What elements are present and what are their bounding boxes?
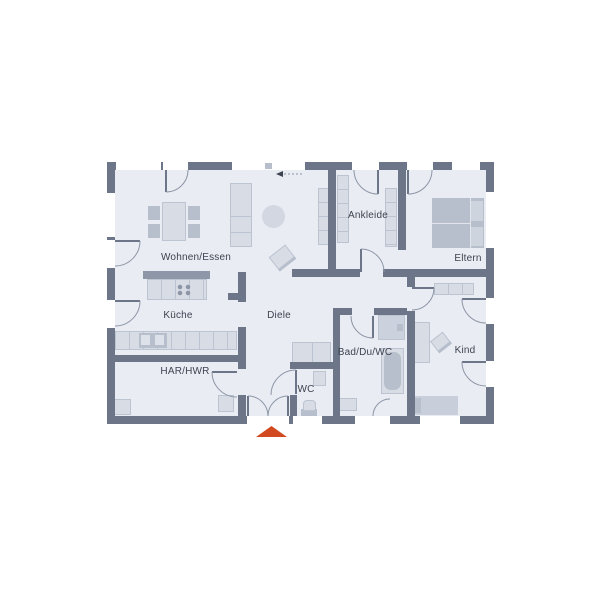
- door-arc: [248, 396, 268, 416]
- door-arc: [408, 170, 432, 194]
- door-arc: [115, 241, 140, 266]
- room-label-wohnen-essen: Wohnen/Essen: [161, 253, 231, 263]
- door-arc: [271, 370, 296, 395]
- room-label-eltern: Eltern: [454, 254, 481, 264]
- door-arc: [115, 301, 140, 326]
- room-label-wc: WC: [297, 385, 314, 395]
- room-label-ankleide: Ankleide: [348, 211, 388, 221]
- door-arc: [268, 396, 288, 416]
- door-arc: [412, 288, 434, 310]
- door-arc: [351, 316, 373, 338]
- door-arc: [354, 170, 378, 194]
- room-label-kind: Kind: [455, 346, 476, 356]
- door-arc: [462, 362, 486, 386]
- entrance-marker-icon: [256, 426, 287, 437]
- door-arc: [361, 249, 384, 272]
- room-label-bad-du-wc: Bad/Du/WC: [338, 348, 393, 358]
- window-arc: [373, 399, 390, 416]
- door-arc: [166, 170, 188, 192]
- room-label-har-hwr: HAR/HWR: [160, 367, 209, 377]
- door-arc: [212, 372, 237, 397]
- room-label-kueche: Küche: [163, 311, 192, 321]
- floor-plan: Wohnen/Essen Küche HAR/HWR Diele WC Bad/…: [0, 0, 600, 600]
- direction-arrow-icon: [276, 171, 283, 177]
- room-label-diele: Diele: [267, 311, 291, 321]
- door-swing-overlay: [0, 0, 600, 600]
- door-arc: [462, 299, 486, 323]
